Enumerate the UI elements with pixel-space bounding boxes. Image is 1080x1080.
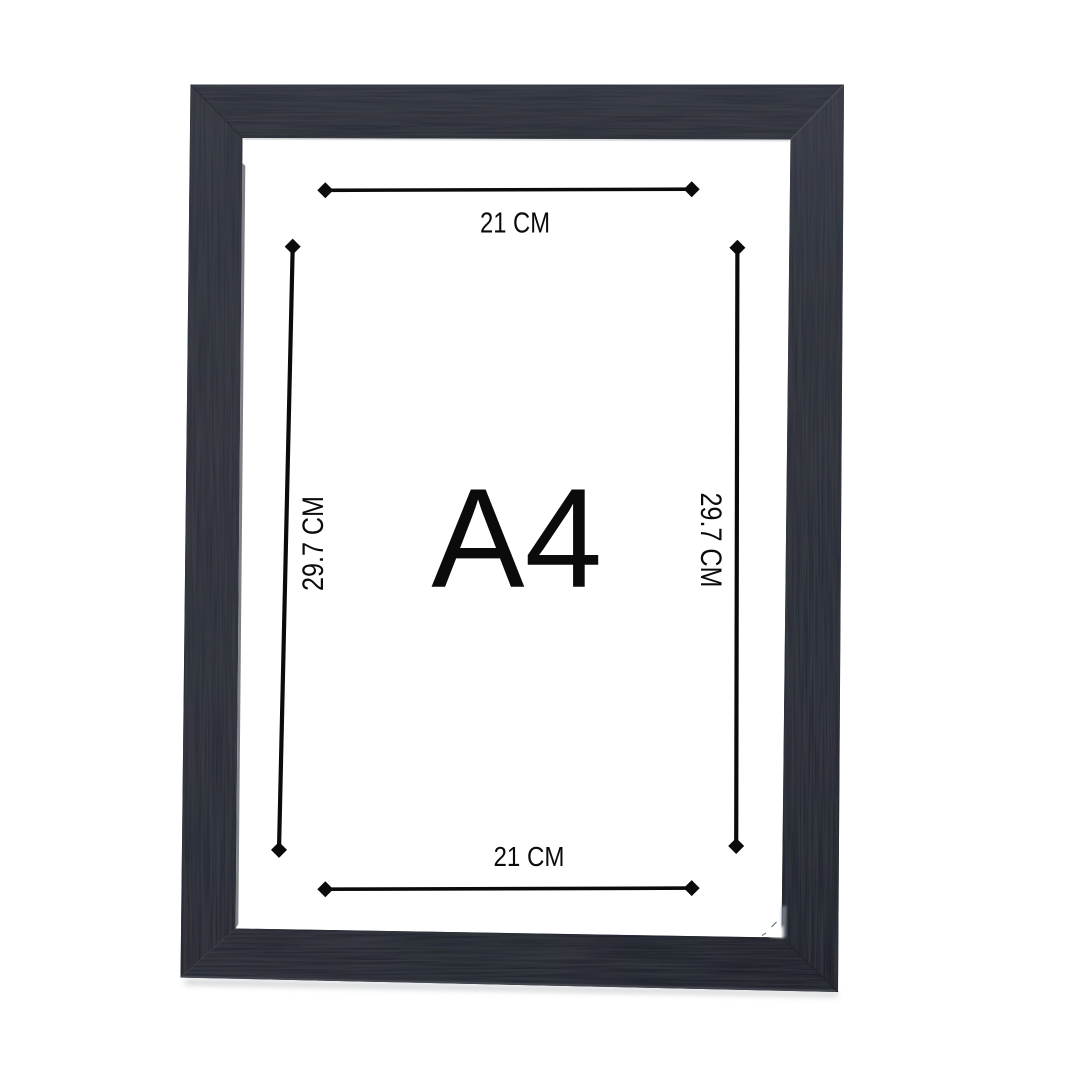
svg-text:A4: A4 bbox=[431, 459, 602, 617]
svg-text:29.7 CM: 29.7 CM bbox=[297, 496, 330, 591]
svg-text:21 CM: 21 CM bbox=[494, 841, 565, 872]
svg-text:21 CM: 21 CM bbox=[480, 208, 550, 240]
svg-text:29.7 CM: 29.7 CM bbox=[694, 493, 727, 588]
